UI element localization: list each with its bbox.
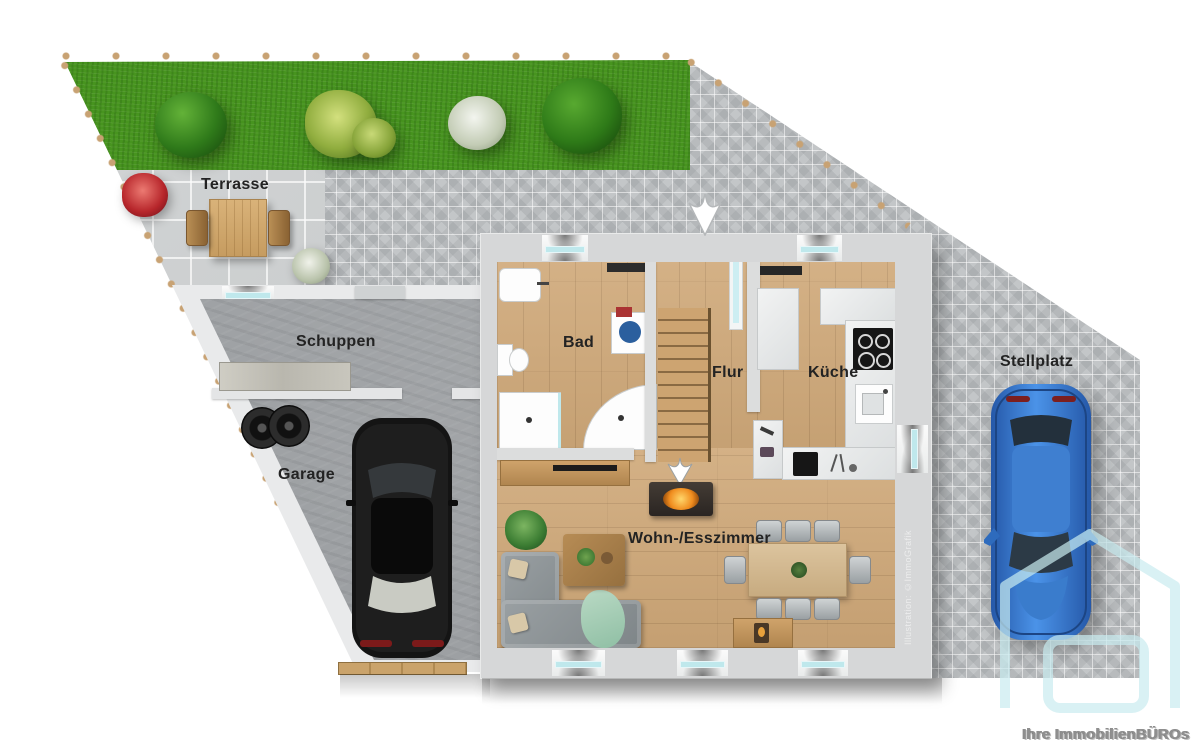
fridge — [757, 288, 799, 370]
terrace-table — [209, 199, 267, 257]
coffee-table — [563, 534, 625, 586]
tree-icon — [542, 78, 622, 154]
room-label-garage: Garage — [278, 466, 335, 484]
dining-table — [748, 543, 847, 597]
shower — [499, 392, 561, 450]
bathroom-sink — [499, 268, 541, 302]
workbench — [219, 362, 351, 391]
bathroom-wall — [497, 448, 634, 460]
illustration-credit: Illustration: ©ImmoGrafik — [903, 445, 913, 645]
room-label-bad: Bad — [563, 334, 594, 352]
shed-window — [222, 286, 274, 299]
room-label-stellplatz: Stellplatz — [1000, 353, 1073, 371]
tire-icon — [268, 405, 310, 447]
red-bush-icon — [122, 173, 168, 217]
boundary-stones-top — [62, 52, 692, 60]
dining-chair — [785, 598, 811, 620]
cooktop — [853, 328, 893, 370]
room-label-wohnesszimmer: Wohn-/Esszimmer — [628, 530, 771, 548]
house-interior — [497, 262, 895, 648]
shed-door-gap — [355, 286, 405, 299]
room-label-flur: Flur — [712, 364, 743, 382]
white-bush-icon — [292, 248, 330, 284]
coffee-machine — [793, 452, 818, 476]
tree-icon — [155, 92, 227, 158]
house-logo-watermark — [990, 528, 1190, 718]
entrance-arrow-icon — [686, 194, 724, 236]
dining-chair — [785, 520, 811, 542]
toilet-bowl — [509, 348, 529, 372]
dining-chair — [756, 598, 782, 620]
bathroom-shelf — [607, 263, 647, 272]
kitchen-island — [782, 447, 895, 480]
tv-sideboard — [500, 460, 630, 486]
living-room-window — [798, 650, 848, 676]
faucet-icon — [537, 282, 549, 285]
floor-plan-canvas: Terrasse Schuppen Garage Bad Flur Küche … — [0, 0, 1200, 753]
dining-chair — [814, 598, 840, 620]
fireplace — [649, 482, 713, 516]
sideboard — [733, 618, 793, 648]
kitchen-window — [797, 235, 842, 261]
living-room-window — [677, 650, 728, 676]
terrace-bench — [268, 210, 290, 246]
dining-chair — [814, 520, 840, 542]
brand-watermark: Ihre ImmobilienBÜROs — [1023, 726, 1190, 743]
room-label-terrasse: Terrasse — [201, 176, 269, 194]
kitchen-sink — [855, 384, 893, 424]
tree-icon — [352, 118, 396, 158]
tree-icon — [448, 96, 506, 150]
room-label-kueche: Küche — [808, 364, 858, 382]
shadow — [340, 674, 490, 698]
terrace-bench — [186, 210, 208, 246]
dining-chair — [849, 556, 871, 584]
staircase — [658, 308, 711, 462]
plant-icon — [505, 510, 547, 550]
entrance-door — [729, 262, 743, 330]
living-room-window — [552, 650, 605, 676]
bathroom-wall — [645, 262, 656, 462]
sofa-cushion — [507, 558, 528, 579]
room-label-schuppen: Schuppen — [296, 333, 376, 351]
black-car — [344, 414, 460, 662]
kitchen-cabinet — [753, 420, 783, 479]
shadow — [482, 678, 942, 704]
shed-garage-wall — [452, 388, 483, 399]
dining-chair — [724, 556, 746, 584]
kitchen-wardrobe — [760, 266, 802, 275]
bathroom-window — [542, 235, 588, 261]
